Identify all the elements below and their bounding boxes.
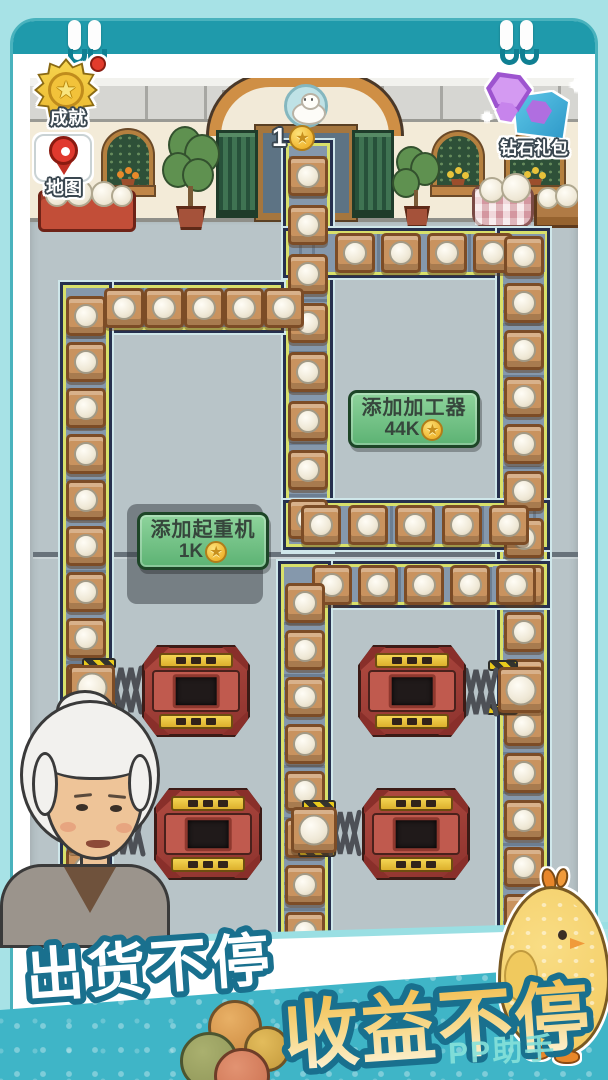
green-shutter xyxy=(352,130,394,218)
processor-machine[interactable] xyxy=(358,645,466,737)
dough-crate xyxy=(66,342,106,382)
dough-crate xyxy=(504,424,544,464)
sheep-eye xyxy=(311,98,313,101)
lattice-window xyxy=(433,132,483,194)
map-label: 地图 xyxy=(26,174,102,200)
coin-icon: ★ xyxy=(289,125,315,151)
crane-dock-crate xyxy=(291,807,337,853)
dough-crate xyxy=(504,283,544,323)
game-screen: 1 ★ 添加加工器 44K ★ 添加起重机 1K ★ ★ 成就 xyxy=(0,0,608,1080)
svg-text:出货不停: 出货不停 xyxy=(24,927,276,1009)
dough-crate xyxy=(66,434,106,474)
dough-crate xyxy=(450,565,490,605)
dough-crate xyxy=(285,677,325,717)
dough-crate xyxy=(348,505,388,545)
map-pin-icon xyxy=(49,136,78,165)
dough-crate xyxy=(288,156,328,196)
dough-crate xyxy=(285,865,325,905)
dough-crate xyxy=(144,288,184,328)
dough-crate xyxy=(504,753,544,793)
achievements-label: 成就 xyxy=(26,104,110,130)
add-crane-cost: 1K xyxy=(179,542,203,562)
dough-crate xyxy=(489,505,529,545)
processor-machine[interactable] xyxy=(362,788,470,880)
binder-staple-icon xyxy=(500,20,513,50)
coin-icon: ★ xyxy=(205,541,227,563)
map-button[interactable]: 地图 xyxy=(30,130,100,198)
conveyor-belt-door-exit xyxy=(283,140,333,552)
dough-crate xyxy=(504,330,544,370)
add-processor-cost: 44K xyxy=(385,420,420,440)
dough-crate xyxy=(66,572,106,612)
dough-crate xyxy=(442,505,482,545)
dough-crate xyxy=(66,480,106,520)
dough-crate xyxy=(224,288,264,328)
green-shutter xyxy=(216,130,258,218)
dough-crate xyxy=(66,388,106,428)
dough-crate xyxy=(504,800,544,840)
door-counter: 1 ★ xyxy=(272,122,315,153)
dough-crate xyxy=(66,526,106,566)
slogan-profit: 收益不停 xyxy=(272,962,608,1080)
dough-crate xyxy=(301,505,341,545)
sparkle-icon xyxy=(482,112,492,122)
dough-crate xyxy=(381,233,421,273)
dough-crate xyxy=(427,233,467,273)
dough-crate xyxy=(504,612,544,652)
dough-crate xyxy=(285,630,325,670)
dough-crate xyxy=(66,296,106,336)
dough-crate xyxy=(288,450,328,490)
dough-crate xyxy=(335,233,375,273)
add-crane-label: 添加起重机 xyxy=(151,520,256,541)
dough-crate xyxy=(285,724,325,764)
crane-dock-crate xyxy=(498,667,544,713)
dough-crate xyxy=(504,236,544,276)
add-processor-label: 添加加工器 xyxy=(362,398,467,419)
wooden-dough-box xyxy=(534,194,584,228)
dough-crate xyxy=(358,565,398,605)
dough-crate xyxy=(404,565,444,605)
binder-staple-icon xyxy=(68,20,81,50)
dough-crate xyxy=(264,288,304,328)
coin-icon: ★ xyxy=(421,419,443,441)
pp-watermark: PP助手 xyxy=(447,1023,557,1073)
dough-crate xyxy=(285,583,325,623)
add-crane-button[interactable]: 添加起重机 1K ★ xyxy=(137,512,269,570)
sheep-head xyxy=(301,93,320,110)
window-flowers xyxy=(117,167,139,181)
dough-crate xyxy=(66,618,106,658)
dough-crate xyxy=(288,352,328,392)
potted-plant xyxy=(392,146,440,230)
window-flowers xyxy=(447,167,469,181)
potted-plant xyxy=(162,126,218,230)
dough-crate xyxy=(184,288,224,328)
dough-crate xyxy=(104,288,144,328)
add-processor-button[interactable]: 添加加工器 44K ★ xyxy=(348,390,480,448)
dough-crate xyxy=(288,401,328,441)
sparkle-icon xyxy=(570,78,584,92)
binder-staple-icon xyxy=(88,20,101,50)
diamond-pack-label: 钻石礼包 xyxy=(480,134,588,159)
dough-crate xyxy=(504,377,544,417)
grandma-character xyxy=(0,694,182,946)
binder-staple-icon xyxy=(520,20,533,50)
sheep-eye xyxy=(304,98,306,101)
dough-crate xyxy=(496,565,536,605)
dough-crate xyxy=(288,205,328,245)
plaid-dough-basket xyxy=(472,186,534,228)
achievements-button[interactable]: ★ 成就 xyxy=(26,58,110,128)
crane-arm-icon xyxy=(462,666,500,718)
dough-crate xyxy=(395,505,435,545)
counter-value: 1 xyxy=(272,122,286,153)
notification-dot xyxy=(90,56,106,72)
diamond-pack-button[interactable]: 钻石礼包 xyxy=(482,72,586,162)
